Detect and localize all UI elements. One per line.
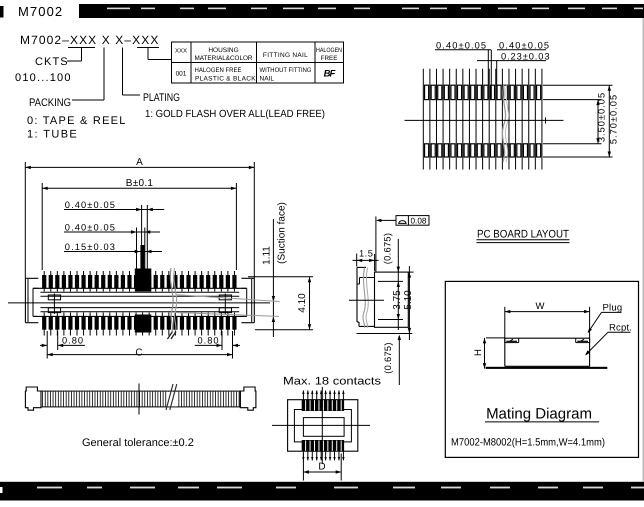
svg-text:HOUSING: HOUSING [208, 47, 238, 54]
svg-text:MATERIAL&COLOR: MATERIAL&COLOR [195, 55, 253, 62]
svg-text:WITHOUT FITTING: WITHOUT FITTING [260, 67, 312, 74]
svg-text:A: A [136, 157, 143, 168]
svg-text:(0.675): (0.675) [383, 342, 393, 374]
svg-text:PLATING: PLATING [143, 92, 180, 104]
svg-text:HALOGEN FREE: HALOGEN FREE [195, 67, 243, 74]
svg-text:HALOGEN: HALOGEN [316, 47, 342, 54]
svg-text:General tolerance:±0.2: General tolerance:±0.2 [82, 437, 194, 449]
svg-text:0.23±0.03: 0.23±0.03 [501, 51, 550, 61]
svg-text:PACKING: PACKING [29, 97, 71, 109]
svg-text:0.15±0.03: 0.15±0.03 [65, 242, 116, 252]
svg-text:PC BOARD LAYOUT: PC BOARD LAYOUT [477, 228, 569, 240]
svg-text:FREE: FREE [321, 55, 338, 62]
svg-text:H: H [473, 349, 484, 356]
svg-text:5.10: 5.10 [403, 290, 414, 310]
svg-text:001: 001 [176, 71, 187, 78]
svg-text:0.80: 0.80 [62, 336, 84, 346]
svg-text:Max. 18 contacts: Max. 18 contacts [283, 375, 382, 387]
svg-text:0.40±0.05: 0.40±0.05 [65, 200, 116, 210]
svg-text:M7002–XXX X X–XXX: M7002–XXX X X–XXX [20, 33, 159, 47]
svg-text:0.40±0.05: 0.40±0.05 [65, 222, 116, 232]
svg-text:XXX: XXX [175, 48, 187, 55]
svg-text:(0.675): (0.675) [383, 233, 393, 265]
svg-text:B±0.1: B±0.1 [126, 178, 154, 189]
svg-text:0: TAPE & REEL: 0: TAPE & REEL [27, 115, 127, 127]
svg-text:C: C [135, 347, 142, 358]
svg-text:BF: BF [324, 69, 336, 80]
svg-text:Plug: Plug [603, 302, 623, 313]
svg-text:D: D [318, 462, 325, 473]
svg-text:CKTS: CKTS [35, 56, 69, 68]
svg-text:M7002: M7002 [18, 4, 63, 19]
svg-text:1: TUBE: 1: TUBE [27, 129, 78, 141]
svg-text:010...100: 010...100 [15, 72, 72, 84]
svg-text:3.50±0.05: 3.50±0.05 [597, 92, 607, 142]
svg-text:1.5: 1.5 [359, 249, 373, 259]
svg-text:0.40±0.05: 0.40±0.05 [436, 40, 487, 50]
svg-text:1: GOLD FLASH OVER ALL(LEAD FR: 1: GOLD FLASH OVER ALL(LEAD FREE) [145, 109, 325, 120]
svg-text:1.11: 1.11 [262, 246, 273, 265]
svg-text:M7002-M8002(H=1.5mm,W=4.1mm): M7002-M8002(H=1.5mm,W=4.1mm) [451, 437, 605, 449]
svg-text:NAIL: NAIL [260, 76, 275, 83]
svg-text:Mating Diagram: Mating Diagram [486, 406, 592, 423]
svg-text:W: W [536, 301, 545, 312]
svg-text:0.80: 0.80 [198, 336, 220, 346]
svg-text:FITTING NAIL: FITTING NAIL [263, 52, 308, 59]
svg-text:0.40±0.05: 0.40±0.05 [499, 40, 550, 50]
svg-text:PLASTIC & BLACK: PLASTIC & BLACK [195, 76, 256, 83]
svg-text:4.10: 4.10 [297, 293, 308, 313]
svg-text:0.08: 0.08 [411, 216, 427, 225]
svg-text:5.70±0.05: 5.70±0.05 [609, 94, 619, 144]
svg-text:(Suction face): (Suction face) [277, 202, 288, 264]
svg-text:Rcpt.: Rcpt. [609, 322, 632, 333]
svg-text:3.75: 3.75 [392, 290, 403, 310]
